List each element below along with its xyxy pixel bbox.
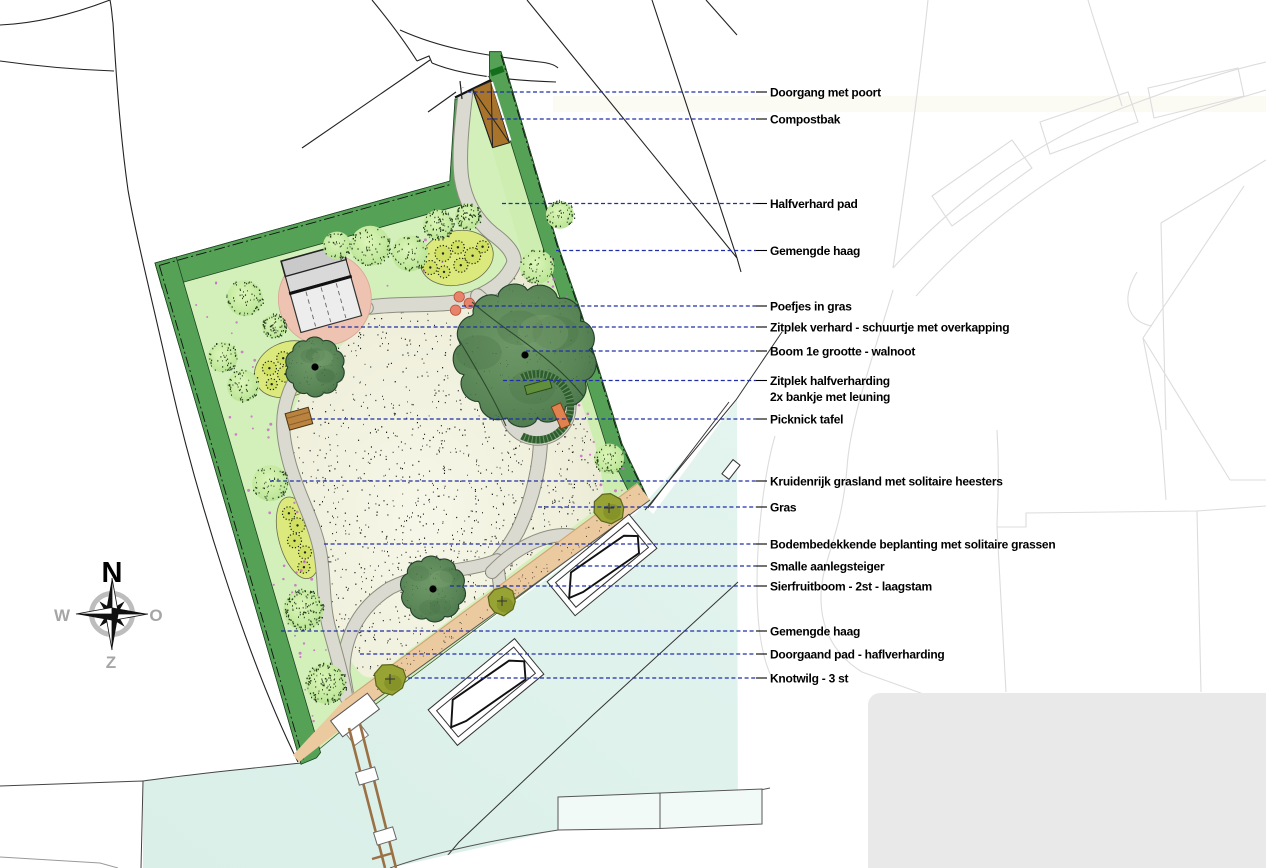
svg-text:Gemengde haag: Gemengde haag [770, 244, 860, 258]
svg-text:Gemengde haag: Gemengde haag [770, 625, 860, 639]
svg-text:Zitplek halfverharding: Zitplek halfverharding [770, 374, 890, 388]
svg-text:2x bankje met leuning: 2x bankje met leuning [770, 390, 890, 404]
svg-text:Smalle aanlegsteiger: Smalle aanlegsteiger [770, 560, 885, 574]
svg-text:W: W [54, 606, 71, 625]
svg-text:Zitplek verhard - schuurtje me: Zitplek verhard - schuurtje met overkapp… [770, 321, 1009, 335]
svg-text:Doorgaand pad - haflverharding: Doorgaand pad - haflverharding [770, 648, 945, 662]
svg-text:N: N [102, 557, 123, 589]
svg-text:Sierfruitboom - 2st - laagstam: Sierfruitboom - 2st - laagstam [770, 580, 932, 594]
svg-text:Gras: Gras [770, 501, 797, 515]
svg-text:Compostbak: Compostbak [770, 113, 841, 127]
svg-text:Z: Z [106, 653, 116, 672]
svg-text:Kruidenrijk grasland met solit: Kruidenrijk grasland met solitaire heest… [770, 475, 1003, 489]
svg-text:Picknick tafel: Picknick tafel [770, 413, 843, 427]
svg-text:Bodembedekkende beplanting met: Bodembedekkende beplanting met solitaire… [770, 538, 1055, 552]
svg-text:Doorgang met poort: Doorgang met poort [770, 86, 881, 100]
svg-text:O: O [149, 606, 162, 625]
svg-text:Halfverhard pad: Halfverhard pad [770, 197, 858, 211]
svg-text:Knotwilg - 3 st: Knotwilg - 3 st [770, 672, 849, 686]
svg-text:Boom 1e grootte - walnoot: Boom 1e grootte - walnoot [770, 345, 915, 359]
svg-text:Poefjes in gras: Poefjes in gras [770, 300, 852, 314]
